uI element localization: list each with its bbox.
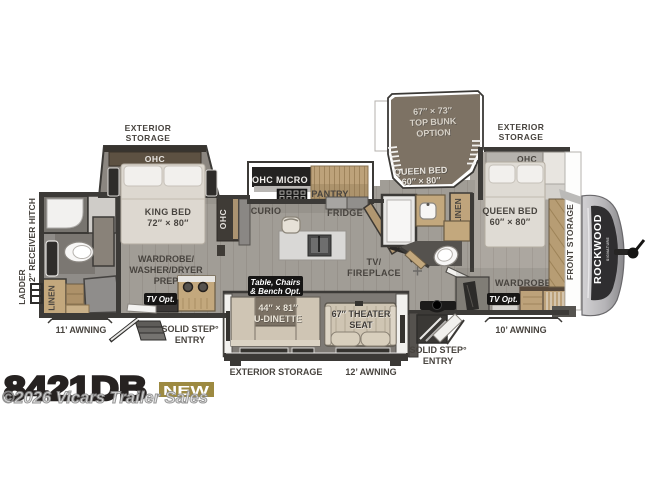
- svg-text:LADDER: LADDER: [17, 269, 27, 304]
- svg-text:OHC: OHC: [145, 154, 165, 164]
- svg-text:11’ AWNING: 11’ AWNING: [56, 325, 107, 335]
- svg-text:©2026 Vicars Trailer Sales: ©2026 Vicars Trailer Sales: [2, 388, 208, 407]
- svg-text:WASHER/DRYER: WASHER/DRYER: [129, 265, 203, 275]
- svg-text:10’ AWNING: 10’ AWNING: [495, 325, 546, 335]
- svg-text:LINEN: LINEN: [453, 198, 463, 224]
- svg-text:67″ × 73″: 67″ × 73″: [413, 105, 453, 117]
- svg-text:OHC MICRO: OHC MICRO: [252, 175, 308, 185]
- svg-text:CURIO: CURIO: [251, 206, 282, 216]
- svg-text:TOP BUNK: TOP BUNK: [410, 116, 458, 128]
- svg-text:EXTERIOR: EXTERIOR: [125, 123, 172, 133]
- svg-text:60″ × 80″: 60″ × 80″: [401, 175, 441, 187]
- svg-text:12’ AWNING: 12’ AWNING: [345, 367, 396, 377]
- svg-text:FRIDGE: FRIDGE: [327, 208, 363, 218]
- svg-text:ENTRY: ENTRY: [423, 356, 453, 366]
- svg-text:QUEEN BED: QUEEN BED: [482, 206, 538, 216]
- svg-text:U-DINETTE: U-DINETTE: [254, 314, 302, 324]
- svg-text:SIGNATURE: SIGNATURE: [606, 237, 610, 261]
- svg-text:SOLID STEP°: SOLID STEP°: [409, 345, 467, 355]
- svg-text:72″ × 80″: 72″ × 80″: [147, 218, 189, 228]
- svg-text:TV Opt.: TV Opt.: [146, 295, 174, 304]
- svg-text:Table, Chairs: Table, Chairs: [251, 278, 301, 287]
- svg-text:FIREPLACE: FIREPLACE: [347, 268, 401, 278]
- svg-text:OHC: OHC: [218, 209, 228, 229]
- svg-text:60″ × 80″: 60″ × 80″: [490, 217, 531, 227]
- svg-text:SOLID STEP°: SOLID STEP°: [161, 324, 219, 334]
- svg-text:67″ THEATER: 67″ THEATER: [332, 309, 391, 319]
- svg-text:2″ RECEIVER HITCH: 2″ RECEIVER HITCH: [27, 198, 37, 282]
- svg-text:PREP: PREP: [154, 276, 179, 286]
- svg-text:44″ × 81″: 44″ × 81″: [259, 303, 299, 313]
- svg-text:WARDROBE/: WARDROBE/: [138, 254, 194, 264]
- svg-text:TV/: TV/: [367, 257, 382, 267]
- svg-text:KING BED: KING BED: [145, 207, 192, 217]
- svg-text:EXTERIOR: EXTERIOR: [498, 122, 545, 132]
- svg-text:STORAGE: STORAGE: [126, 133, 171, 143]
- svg-text:ROCKWOOD: ROCKWOOD: [593, 214, 604, 284]
- svg-text:EXTERIOR STORAGE: EXTERIOR STORAGE: [230, 367, 323, 377]
- svg-text:ENTRY: ENTRY: [175, 335, 205, 345]
- svg-text:FRONT STORAGE: FRONT STORAGE: [565, 204, 575, 280]
- svg-text:SEAT: SEAT: [349, 320, 373, 330]
- svg-text:TV Opt.: TV Opt.: [489, 295, 517, 304]
- svg-text:& Bench Opt.: & Bench Opt.: [250, 287, 301, 296]
- svg-text:STORAGE: STORAGE: [499, 132, 544, 142]
- svg-text:LINEN: LINEN: [47, 285, 57, 311]
- svg-text:OPTION: OPTION: [416, 127, 451, 138]
